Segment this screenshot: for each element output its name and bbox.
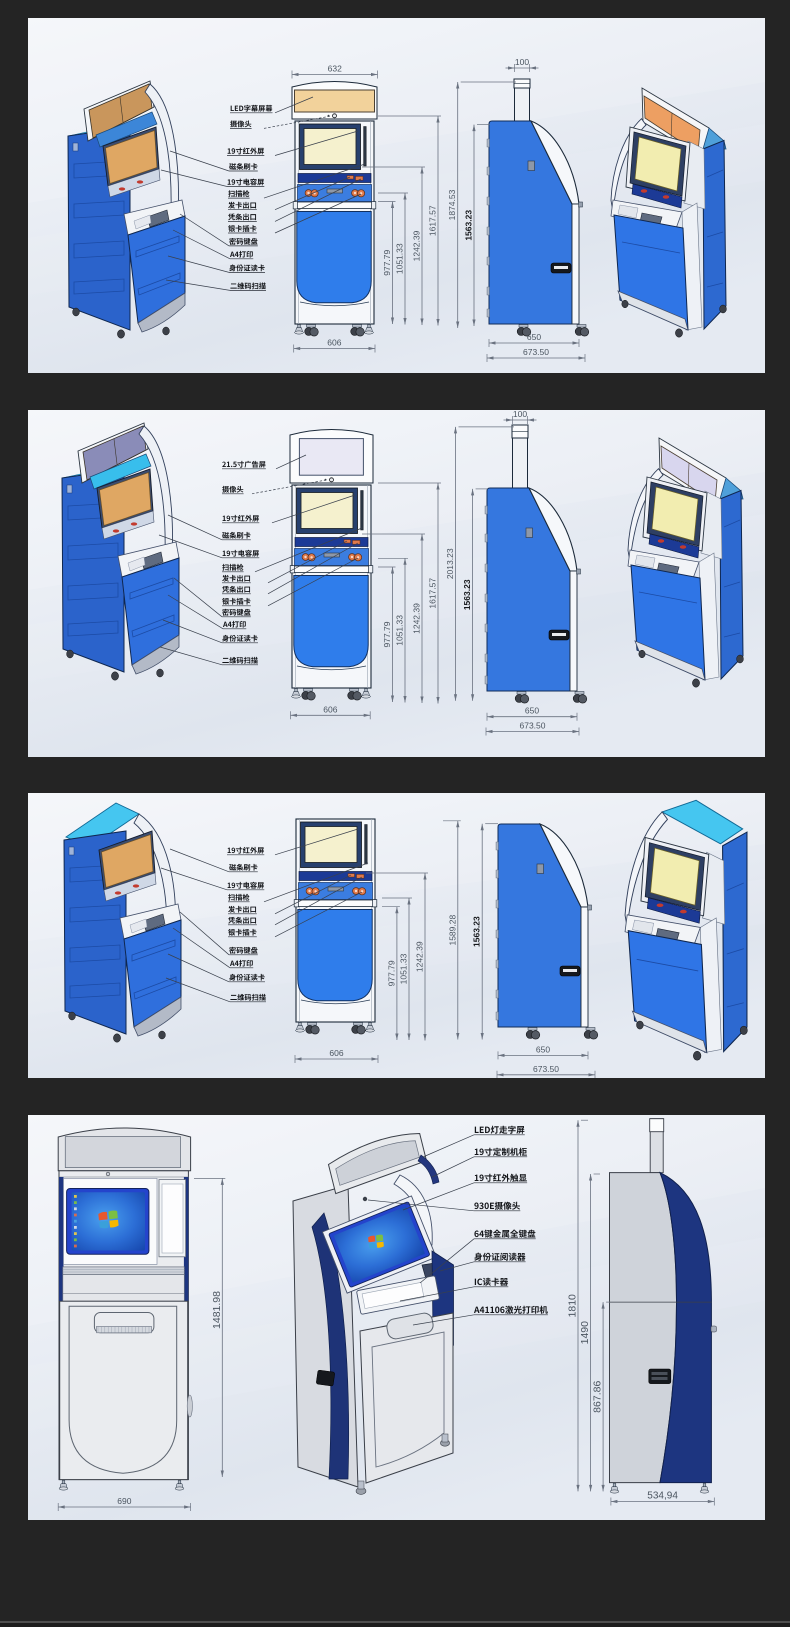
svg-text:1563.23: 1563.23 bbox=[464, 210, 474, 241]
svg-text:977.79: 977.79 bbox=[382, 249, 392, 275]
svg-text:650: 650 bbox=[525, 706, 539, 716]
svg-text:1563.23: 1563.23 bbox=[472, 916, 482, 947]
svg-text:690: 690 bbox=[117, 1496, 131, 1506]
svg-text:632: 632 bbox=[328, 64, 342, 74]
svg-text:650: 650 bbox=[536, 1044, 550, 1054]
svg-text:977.79: 977.79 bbox=[382, 621, 392, 647]
svg-text:606: 606 bbox=[323, 704, 337, 714]
svg-text:673.50: 673.50 bbox=[533, 1064, 559, 1074]
svg-text:1617.57: 1617.57 bbox=[428, 578, 438, 609]
svg-text:1051.33: 1051.33 bbox=[395, 615, 405, 646]
svg-text:100: 100 bbox=[515, 57, 529, 67]
svg-text:1051.33: 1051.33 bbox=[399, 953, 409, 984]
svg-text:534,94: 534,94 bbox=[647, 1491, 678, 1502]
svg-text:650: 650 bbox=[527, 332, 541, 342]
svg-text:1490: 1490 bbox=[579, 1321, 591, 1345]
svg-text:673.50: 673.50 bbox=[523, 347, 549, 357]
svg-text:1874.53: 1874.53 bbox=[447, 189, 457, 220]
svg-text:2013.23: 2013.23 bbox=[445, 548, 455, 579]
svg-text:1563.23: 1563.23 bbox=[462, 579, 472, 610]
svg-text:606: 606 bbox=[327, 338, 341, 348]
svg-text:673.50: 673.50 bbox=[520, 721, 546, 731]
svg-text:606: 606 bbox=[329, 1048, 343, 1058]
svg-text:977.79: 977.79 bbox=[386, 960, 396, 986]
svg-text:1589.28: 1589.28 bbox=[447, 915, 457, 946]
svg-text:1481.98: 1481.98 bbox=[211, 1291, 223, 1329]
svg-text:1242.39: 1242.39 bbox=[412, 603, 422, 634]
svg-text:1810: 1810 bbox=[567, 1294, 579, 1318]
svg-text:1051.33: 1051.33 bbox=[395, 243, 405, 274]
svg-text:1617.57: 1617.57 bbox=[428, 205, 438, 236]
svg-text:1242.39: 1242.39 bbox=[412, 230, 422, 261]
svg-text:100: 100 bbox=[513, 410, 527, 419]
svg-text:1242.39: 1242.39 bbox=[415, 941, 425, 972]
svg-text:867.86: 867.86 bbox=[592, 1381, 604, 1413]
